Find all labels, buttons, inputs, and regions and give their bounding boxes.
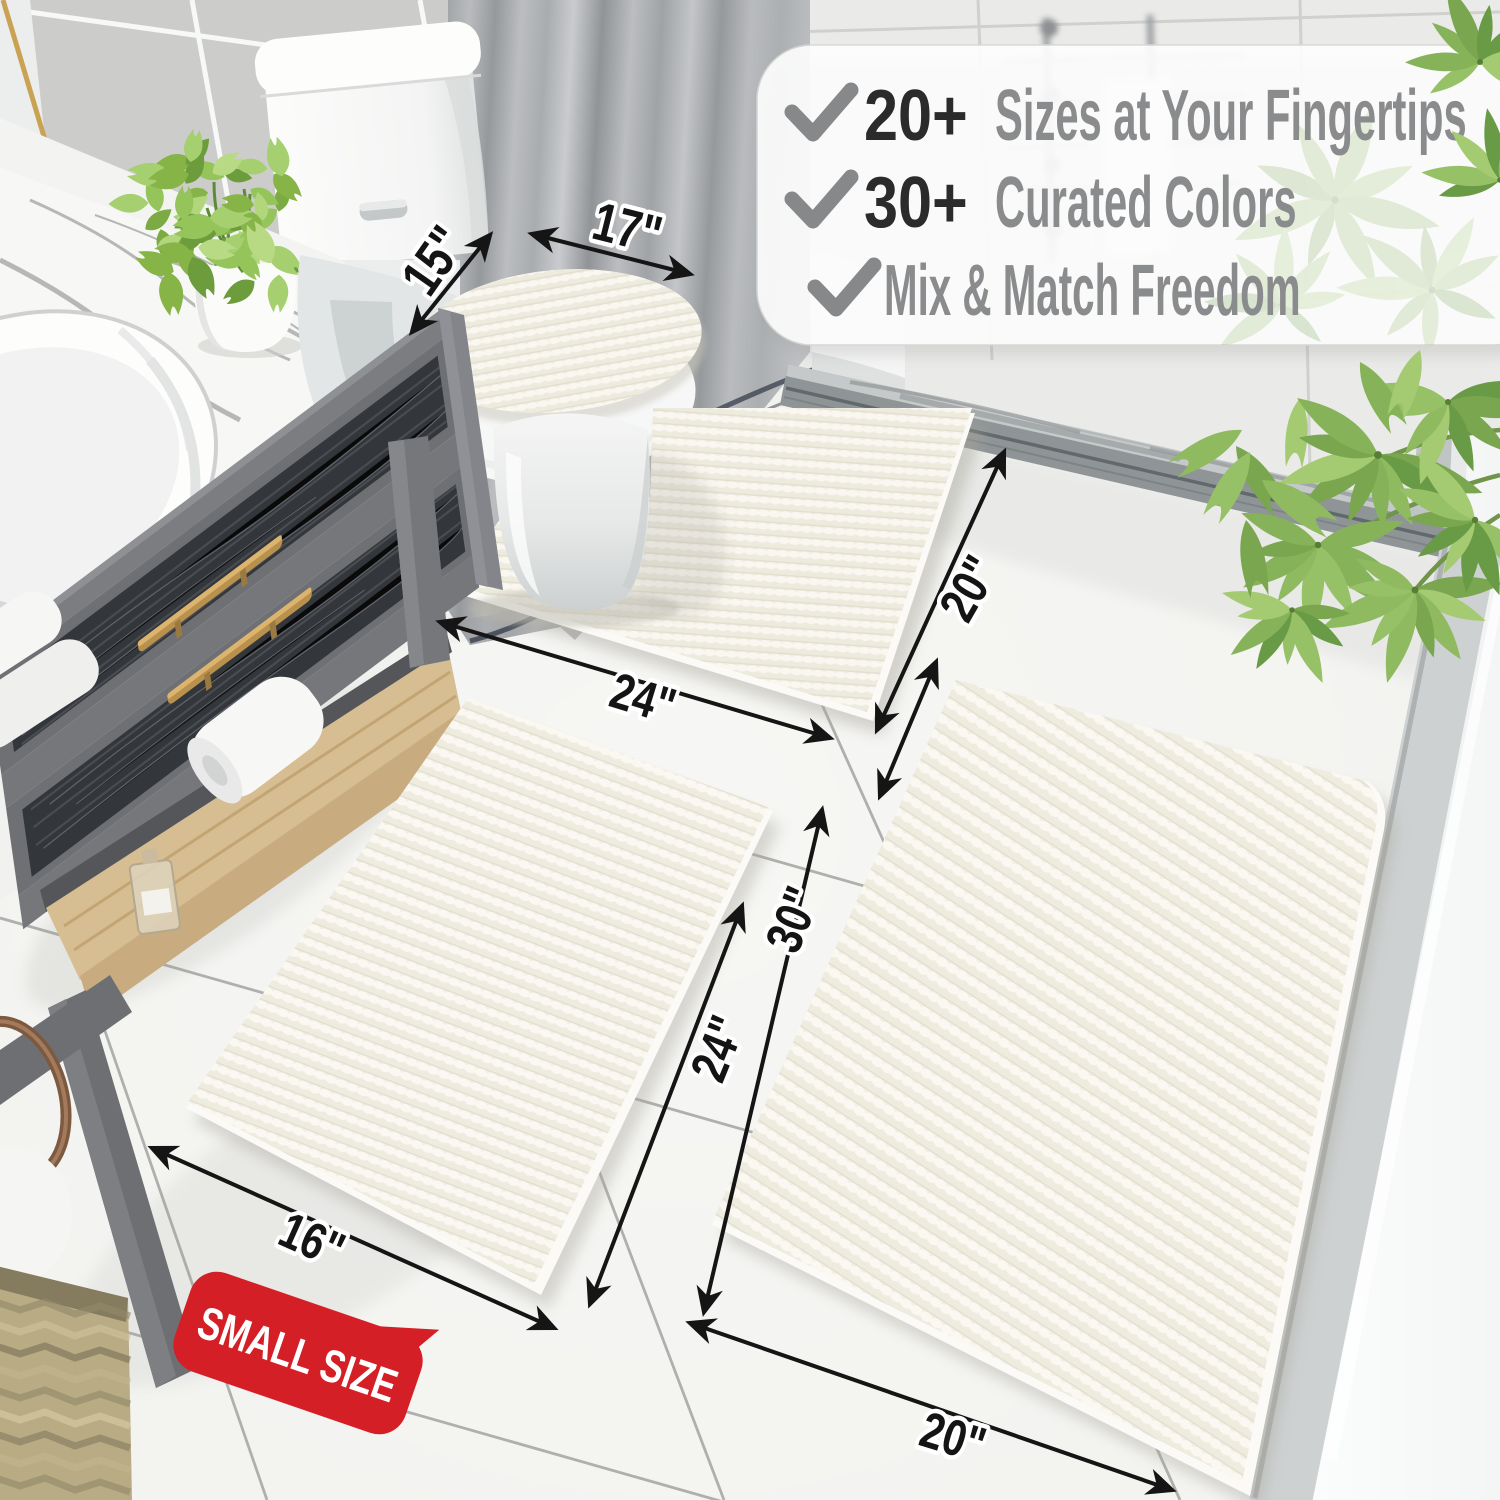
svg-text:Curated Colors: Curated Colors bbox=[995, 163, 1297, 243]
svg-text:30+: 30+ bbox=[864, 163, 968, 243]
svg-text:Mix & Match Freedom: Mix & Match Freedom bbox=[884, 251, 1301, 331]
svg-text:20+: 20+ bbox=[864, 76, 968, 156]
svg-text:Sizes at Your Fingertips: Sizes at Your Fingertips bbox=[995, 76, 1467, 156]
